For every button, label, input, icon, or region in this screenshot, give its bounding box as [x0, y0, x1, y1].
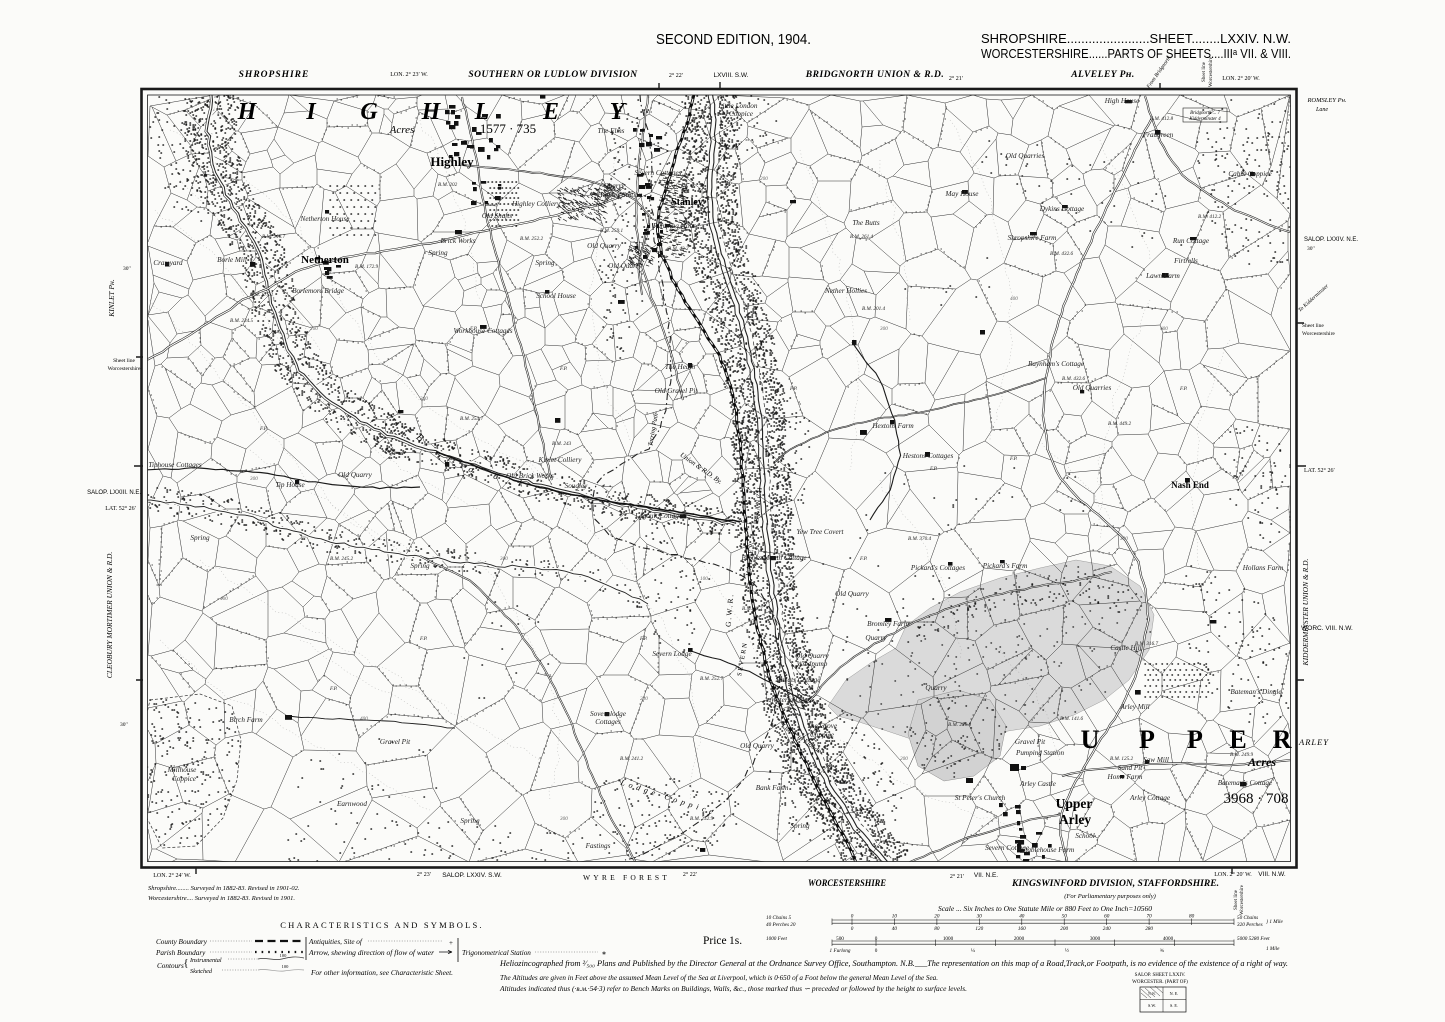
- svg-text:Arley Castle: Arley Castle: [1019, 780, 1057, 788]
- svg-text:May House: May House: [945, 190, 980, 198]
- svg-text:Sheet line: Sheet line: [1234, 889, 1239, 910]
- svg-text:WORCESTERSHIRE......PARTS OF: WORCESTERSHIRE......PARTS OF SHEETS....I…: [981, 47, 1291, 61]
- svg-text:B.M. 241.2: B.M. 241.2: [620, 755, 643, 762]
- svg-text:Price: Price: [703, 935, 727, 947]
- svg-text:Spring: Spring: [535, 259, 555, 267]
- svg-text:B.M. 270.8: B.M. 270.8: [948, 722, 971, 728]
- svg-text:School: School: [1075, 832, 1095, 840]
- svg-text:300: 300: [1120, 536, 1128, 542]
- svg-text:SALOP. LXXIV. S.W.: SALOP. LXXIV. S.W.: [442, 872, 502, 879]
- svg-text:120: 120: [975, 926, 983, 932]
- svg-text:B.M. 210.7: B.M. 210.7: [262, 234, 285, 240]
- svg-text:Stanley: Stanley: [671, 197, 703, 208]
- svg-text:S.W.: S.W.: [1148, 1003, 1156, 1008]
- svg-text:B.M. 253.7: B.M. 253.7: [460, 416, 483, 422]
- svg-text:B.M. 432.6: B.M. 432.6: [1050, 250, 1073, 257]
- svg-text:1000 Feet: 1000 Feet: [766, 936, 787, 942]
- svg-text:Acres: Acres: [389, 124, 415, 136]
- svg-text:B.M. 43.2: B.M. 43.2: [668, 245, 689, 252]
- svg-text:10: 10: [892, 914, 898, 920]
- svg-text:ALVELEY Pʜ.: ALVELEY Pʜ.: [1070, 70, 1135, 80]
- svg-text:SHROPSHIRE: SHROPSHIRE: [239, 70, 310, 80]
- svg-text:CHARACTERISTICS AND SYMBOLS.: CHARACTERISTICS AND SYMBOLS.: [280, 920, 484, 930]
- svg-text:Worcestershire.... Surveyed: Worcestershire.... Surveyed in 1882-83. …: [148, 895, 295, 902]
- svg-text:N.W.: N.W.: [1148, 992, 1156, 996]
- svg-text:240: 240: [1103, 925, 1111, 932]
- svg-text:Old Quarry: Old Quarry: [795, 652, 830, 660]
- svg-text:1 Mile: 1 Mile: [1266, 946, 1280, 952]
- svg-text:LAT. 52° 26′: LAT. 52° 26′: [105, 505, 136, 512]
- svg-text:3000: 3000: [1090, 936, 1101, 942]
- svg-text:B.M. 252.9: B.M. 252.9: [690, 816, 713, 822]
- svg-text:LAT. 52° 26′: LAT. 52° 26′: [1304, 467, 1335, 474]
- svg-text:The Heath: The Heath: [665, 363, 696, 371]
- svg-text:Highley Colliery: Highley Colliery: [511, 200, 561, 208]
- svg-text:300: 300: [560, 816, 568, 822]
- svg-text:Pumping Station: Pumping Station: [1015, 749, 1065, 757]
- svg-text:Old Brick Works: Old Brick Works: [506, 472, 554, 480]
- svg-text:Old Shafts: Old Shafts: [482, 212, 512, 220]
- svg-text:LON. 2° 20′ W.: LON. 2° 20′ W.: [1222, 75, 1260, 82]
- svg-text:Highley: Highley: [430, 154, 474, 169]
- svg-text:∗: ∗: [601, 951, 606, 957]
- svg-text:F.P.: F.P.: [639, 636, 648, 642]
- svg-text:Quarry: Quarry: [925, 684, 947, 692]
- svg-text:Altitudes indicated thus (·ʙ.ᴍ: Altitudes indicated thus (·ʙ.ᴍ.·54·3) re…: [499, 984, 967, 993]
- svg-text:B.M. 370.4: B.M. 370.4: [908, 535, 931, 542]
- svg-text:50: 50: [1062, 914, 1068, 920]
- svg-text:Borlemore Bridge: Borlemore Bridge: [292, 287, 345, 295]
- svg-text:Borle Mill: Borle Mill: [217, 256, 247, 264]
- svg-text:Tiphouse Cottages: Tiphouse Cottages: [148, 461, 202, 469]
- svg-text:Fraugreen: Fraugreen: [1142, 131, 1174, 139]
- svg-text:Sheet line: Sheet line: [1302, 323, 1324, 329]
- svg-text:VII. N.E.: VII. N.E.: [974, 872, 998, 879]
- svg-text:B.M. 316.7: B.M. 316.7: [1135, 641, 1158, 647]
- svg-text:Saw Mill: Saw Mill: [1143, 756, 1169, 764]
- svg-text:N. E.: N. E.: [1170, 991, 1179, 996]
- svg-text:½: ½: [1065, 947, 1069, 954]
- svg-text:200: 200: [900, 756, 908, 762]
- svg-text:Worcestershire: Worcestershire: [1209, 56, 1214, 87]
- svg-text:County Boundary: County Boundary: [156, 938, 208, 946]
- svg-text:Gravel Pit: Gravel Pit: [380, 738, 411, 746]
- svg-text:2° 21′: 2° 21′: [950, 873, 965, 880]
- svg-text:F.P.: F.P.: [1179, 386, 1188, 392]
- svg-text:2° 22′: 2° 22′: [683, 871, 698, 878]
- svg-text:LXVIII. S.W.: LXVIII. S.W.: [713, 72, 748, 79]
- svg-text:Severn Lodge: Severn Lodge: [652, 650, 692, 658]
- svg-text:Pumping House: Pumping House: [652, 222, 700, 230]
- svg-text:H: H: [421, 99, 442, 125]
- svg-text:¼: ¼: [971, 948, 975, 954]
- svg-text:F.P.: F.P.: [789, 386, 798, 392]
- svg-text:B.M. 259.1: B.M. 259.1: [600, 228, 623, 234]
- svg-text:Arley Mill: Arley Mill: [1119, 703, 1149, 711]
- svg-text:160: 160: [1018, 926, 1026, 932]
- svg-text:KINGSWINFORD DIVISION, STA: KINGSWINFORD DIVISION, STAFFORDSHIRE.: [1011, 879, 1219, 889]
- svg-text:Tip House: Tip House: [275, 481, 305, 489]
- svg-text:400: 400: [1160, 325, 1168, 332]
- svg-text:The Altitudes are given in Fee: The Altitudes are given in Feet above th…: [500, 973, 938, 982]
- svg-text:10 Chains 5: 10 Chains 5: [766, 915, 791, 921]
- svg-text:50 Chains: 50 Chains: [1237, 915, 1258, 921]
- svg-text:SOUTHERN OR LUDLOW DIVISION: SOUTHERN OR LUDLOW DIVISION: [468, 70, 638, 80]
- svg-text:Arley: Arley: [1059, 812, 1091, 827]
- svg-text:Worcestershire: Worcestershire: [1240, 884, 1245, 915]
- svg-text:B.M. 252.2: B.M. 252.2: [520, 236, 543, 242]
- svg-text:LON. 2° 20′ W.: LON. 2° 20′ W.: [1214, 871, 1252, 878]
- svg-text:Old Quarries: Old Quarries: [1006, 152, 1045, 160]
- svg-text:2° 23′: 2° 23′: [417, 871, 432, 878]
- svg-text:Workhouse Cottages: Workhouse Cottages: [453, 327, 512, 335]
- svg-text:E: E: [1229, 725, 1246, 754]
- svg-text:Bateman's Dingle: Bateman's Dingle: [1230, 688, 1282, 696]
- svg-text:200: 200: [760, 176, 768, 182]
- svg-text:Hextons Farm: Hextons Farm: [871, 422, 913, 430]
- svg-text:Quarry: Quarry: [603, 182, 625, 190]
- svg-text:WORCESTERSHIRE: WORCESTERSHIRE: [808, 879, 886, 889]
- svg-text:SECOND EDITION, 1904.: SECOND EDITION, 1904.: [656, 31, 811, 48]
- svg-text:100: 100: [700, 576, 708, 582]
- svg-text:School House: School House: [536, 292, 577, 300]
- svg-text:0: 0: [851, 914, 854, 920]
- svg-text:Windpump: Windpump: [797, 660, 828, 668]
- svg-text:Old Quarry: Old Quarry: [338, 471, 373, 479]
- svg-text:2° 21′: 2° 21′: [949, 75, 964, 82]
- svg-text:+: +: [449, 939, 453, 947]
- svg-text:WORCESTER. (PART OF): WORCESTER. (PART OF): [1132, 980, 1188, 985]
- svg-text:Fastings: Fastings: [585, 842, 611, 850]
- svg-text:Upper: Upper: [1056, 796, 1093, 811]
- svg-text:Y: Y: [610, 99, 627, 125]
- svg-text:3968 · 708: 3968 · 708: [1224, 791, 1289, 807]
- svg-text:1577 · 735: 1577 · 735: [480, 121, 536, 136]
- svg-text:Coppice: Coppice: [810, 731, 835, 739]
- svg-text:{: {: [183, 957, 188, 969]
- svg-text:Bank Farm: Bank Farm: [756, 784, 789, 792]
- svg-text:B.M. 245.2: B.M. 245.2: [330, 555, 353, 562]
- svg-text:U: U: [1081, 725, 1100, 754]
- svg-text:B.M. 412.8: B.M. 412.8: [1150, 115, 1173, 122]
- svg-text:F.P.: F.P.: [419, 636, 428, 642]
- svg-text:Gravel Pit: Gravel Pit: [1015, 738, 1046, 746]
- svg-text:Lagoult Cottages: Lagoult Cottages: [634, 512, 685, 520]
- svg-text:Spring: Spring: [410, 562, 430, 570]
- svg-text:Bromley Farm: Bromley Farm: [867, 620, 909, 628]
- svg-text:400: 400: [1010, 295, 1018, 302]
- svg-text:Netherton: Netherton: [301, 254, 349, 266]
- svg-text:30′′: 30′′: [123, 266, 131, 272]
- svg-text:SALOP. LXXIII. N.E.: SALOP. LXXIII. N.E.: [87, 490, 141, 496]
- svg-text:Sovernlodge: Sovernlodge: [590, 710, 627, 718]
- svg-text:40: 40: [892, 925, 898, 932]
- svg-text:Brick Works: Brick Works: [440, 237, 475, 245]
- svg-text:VIII. N.W.: VIII. N.W.: [1258, 871, 1286, 878]
- svg-text:Arrow, shewing direction of fl: Arrow, shewing direction of flow of wate…: [308, 949, 434, 957]
- svg-text:400: 400: [220, 595, 228, 602]
- svg-text:5000 5280 Feet: 5000 5280 Feet: [1237, 936, 1270, 942]
- svg-text:Severn Cottages: Severn Cottages: [635, 169, 682, 177]
- svg-text:For other information, see Cha: For other information, see Characteristi…: [310, 969, 453, 977]
- svg-text:Quarry: Quarry: [865, 634, 887, 642]
- svg-text:280: 280: [1145, 926, 1153, 932]
- svg-text:ROMSLEY Pʜ.: ROMSLEY Pʜ.: [1306, 97, 1346, 104]
- svg-text:Parish Boundary: Parish Boundary: [155, 949, 206, 957]
- svg-text:I: I: [305, 99, 317, 125]
- svg-text:Worcestershire: Worcestershire: [108, 366, 141, 372]
- svg-text:BRIDGNORTH UNION & R.D.: BRIDGNORTH UNION & R.D.: [805, 70, 944, 80]
- svg-text:4000: 4000: [1163, 936, 1174, 942]
- svg-text:20: 20: [934, 914, 940, 920]
- svg-text:Nether Hollies: Nether Hollies: [824, 287, 867, 295]
- svg-text:Soudley: Soudley: [565, 482, 589, 490]
- svg-text:Sheet line: Sheet line: [113, 358, 135, 364]
- svg-text:Little London: Little London: [718, 102, 758, 110]
- svg-text:B.M. 243: B.M. 243: [552, 440, 572, 447]
- svg-text:KIDDERMINSTER UNION & R.D.: KIDDERMINSTER UNION & R.D.: [1301, 558, 1310, 666]
- svg-text:Spring: Spring: [190, 534, 210, 542]
- svg-text:Spring: Spring: [460, 817, 480, 825]
- svg-text:Dykins Cottage: Dykins Cottage: [1039, 205, 1085, 213]
- svg-text:Sarjats Cottage: Sarjats Cottage: [776, 676, 822, 684]
- svg-text:Contours: Contours: [157, 962, 184, 970]
- svg-text:St Peter's Church: St Peter's Church: [955, 794, 1006, 802]
- svg-text:Cramyard: Cramyard: [153, 259, 183, 267]
- svg-text:B.M. 125.2: B.M. 125.2: [1110, 756, 1133, 762]
- svg-text:¾: ¾: [1160, 947, 1164, 954]
- svg-text:400: 400: [360, 715, 368, 722]
- svg-text:300: 300: [880, 326, 888, 332]
- svg-text:80: 80: [1189, 914, 1195, 920]
- svg-text:Hestons Cottages: Hestons Cottages: [902, 452, 954, 460]
- svg-text:0: 0: [851, 926, 854, 932]
- svg-text:Antiquities, Site of: Antiquities, Site of: [308, 938, 363, 946]
- svg-text:70: 70: [1147, 914, 1153, 920]
- svg-text:Millhouse: Millhouse: [167, 766, 198, 774]
- svg-text:80: 80: [934, 926, 940, 932]
- svg-text:Home Farm: Home Farm: [1107, 773, 1143, 781]
- svg-text:Coppice: Coppice: [729, 110, 754, 118]
- svg-text:LON. 2° 23′ W.: LON. 2° 23′ W.: [390, 71, 428, 78]
- svg-text:B.M. 432.6: B.M. 432.6: [1062, 375, 1085, 382]
- svg-text:Sheet line: Sheet line: [1202, 61, 1207, 82]
- svg-text:Bateman's Cottage: Bateman's Cottage: [1218, 779, 1273, 787]
- svg-text:Earnwood: Earnwood: [336, 800, 367, 808]
- svg-text:60: 60: [1104, 914, 1110, 920]
- svg-text:Yew Tree Covert: Yew Tree Covert: [797, 528, 845, 536]
- svg-text:40 Perches 20: 40 Perches 20: [766, 921, 796, 928]
- svg-text:Netherton House: Netherton House: [300, 215, 351, 223]
- svg-text:Pickard's Farm: Pickard's Farm: [982, 562, 1028, 570]
- svg-text:0: 0: [875, 948, 878, 954]
- svg-text:F.P.: F.P.: [559, 366, 568, 372]
- svg-text:WYRE FOREST: WYRE FOREST: [583, 873, 670, 882]
- svg-text:Old Quarry: Old Quarry: [608, 262, 643, 270]
- svg-text:Arley Cottage: Arley Cottage: [1129, 794, 1171, 802]
- svg-text:100: 100: [282, 964, 290, 969]
- svg-text:Birch Farm: Birch Farm: [229, 716, 262, 724]
- svg-text:P: P: [1187, 725, 1203, 754]
- svg-text:Coppice: Coppice: [172, 775, 197, 783]
- svg-text:Spring: Spring: [428, 249, 448, 257]
- svg-text:} 1 Mile: } 1 Mile: [1266, 919, 1283, 925]
- svg-text:1000: 1000: [943, 936, 954, 942]
- svg-text:ARLEY: ARLEY: [1298, 737, 1329, 747]
- svg-text:40: 40: [1019, 913, 1025, 920]
- svg-text:Old Quarries: Old Quarries: [1073, 384, 1112, 392]
- svg-text:B.M. 412.2: B.M. 412.2: [1198, 213, 1221, 220]
- svg-text:R: R: [1273, 725, 1292, 754]
- svg-text:Nash End: Nash End: [1171, 480, 1209, 490]
- svg-text:Firtrells: Firtrells: [1173, 257, 1198, 265]
- svg-text:Heliozincographed from ²⁄₅₀₀: Heliozincographed from ²⁄₅₀₀ Plans and P…: [499, 959, 1288, 968]
- svg-text:F.P.: F.P.: [859, 556, 868, 562]
- svg-text:200: 200: [640, 696, 648, 702]
- svg-text:Shropshire Farm: Shropshire Farm: [1008, 234, 1057, 242]
- svg-text:Kinlet Colliery: Kinlet Colliery: [538, 456, 583, 464]
- svg-text:P: P: [1139, 725, 1155, 754]
- svg-text:The Grove: The Grove: [807, 722, 838, 730]
- svg-text:F.P.: F.P.: [929, 466, 938, 472]
- svg-text:CLEOBURY MORTIMER UNION &: CLEOBURY MORTIMER UNION & R.D.: [105, 552, 114, 679]
- svg-text:Stablehouse Farm: Stablehouse Farm: [1022, 846, 1075, 854]
- svg-text:B.M. 141.6: B.M. 141.6: [1060, 715, 1083, 722]
- svg-text:Bridgnorth ... 7: Bridgnorth ... 7: [1190, 111, 1220, 116]
- svg-text:B.M. 252.7: B.M. 252.7: [700, 676, 723, 682]
- svg-text:Scale ... Six Inches to One St: Scale ... Six Inches to One Statute Mile…: [938, 904, 1152, 913]
- svg-text:SHROPSHIRE....................: SHROPSHIRE.......................SHEET..…: [981, 32, 1291, 46]
- svg-text:The Elms: The Elms: [598, 127, 625, 135]
- svg-text:30: 30: [977, 914, 983, 920]
- svg-text:1s.: 1s.: [729, 935, 742, 947]
- svg-text:SALOP. SHEET LXXIV.: SALOP. SHEET LXXIV.: [1135, 973, 1186, 978]
- svg-text:Old Quarry: Old Quarry: [835, 590, 870, 598]
- svg-text:B.M. 234.5: B.M. 234.5: [230, 317, 253, 324]
- svg-text:LON. 2° 24′ W.: LON. 2° 24′ W.: [153, 872, 191, 879]
- svg-text:Cabin Coppice: Cabin Coppice: [1228, 170, 1272, 178]
- svg-text:30′′: 30′′: [120, 722, 128, 728]
- svg-text:B.M. 449.2: B.M. 449.2: [1108, 420, 1131, 427]
- svg-text:Sketched: Sketched: [190, 968, 213, 975]
- svg-text:Waterfall: Waterfall: [771, 696, 798, 704]
- svg-text:300: 300: [420, 396, 428, 402]
- svg-text:B.M. 175.2: B.M. 175.2: [250, 292, 273, 298]
- svg-text:0: 0: [875, 936, 878, 942]
- svg-text:B.M. 92.7: B.M. 92.7: [742, 606, 763, 612]
- svg-text:F.P.: F.P.: [469, 326, 478, 332]
- svg-text:F.P.: F.P.: [259, 426, 268, 432]
- svg-text:B.M. 249.9: B.M. 249.9: [1230, 751, 1253, 758]
- svg-text:High House: High House: [1104, 97, 1140, 105]
- svg-text:Instrumental: Instrumental: [189, 957, 222, 964]
- svg-text:Lane: Lane: [1315, 107, 1328, 113]
- svg-text:S. E.: S. E.: [1170, 1003, 1178, 1008]
- svg-text:2000: 2000: [1014, 936, 1025, 942]
- svg-text:KINLET Pʜ.: KINLET Pʜ.: [107, 279, 116, 318]
- svg-text:Highley Station: Highley Station: [597, 191, 643, 199]
- svg-text:Lawn Farm: Lawn Farm: [1145, 272, 1180, 280]
- svg-text:30′′: 30′′: [1307, 246, 1315, 252]
- svg-text:Baynham's Cottage: Baynham's Cottage: [1028, 360, 1085, 368]
- svg-text:Run Cottage: Run Cottage: [1172, 237, 1210, 245]
- svg-text:G: G: [360, 99, 378, 125]
- svg-text:Worcestershire: Worcestershire: [1302, 331, 1335, 337]
- svg-text:Spring: Spring: [790, 822, 810, 830]
- svg-text:200: 200: [310, 326, 318, 332]
- svg-text:F.P.: F.P.: [329, 686, 338, 692]
- svg-text:300: 300: [500, 556, 508, 562]
- svg-text:Old Gravel Pit: Old Gravel Pit: [655, 387, 699, 395]
- svg-text:Old Quarry: Old Quarry: [587, 242, 622, 250]
- svg-text:Kidderminster 4: Kidderminster 4: [1188, 117, 1221, 122]
- svg-text:E: E: [542, 99, 559, 125]
- svg-text:Sand Pit: Sand Pit: [1118, 764, 1144, 772]
- svg-text:F.P.: F.P.: [1009, 456, 1018, 462]
- svg-text:H: H: [237, 99, 258, 125]
- svg-text:200: 200: [1060, 926, 1068, 932]
- svg-text:(For Parliamentary purposes on: (For Parliamentary purposes only): [1064, 893, 1156, 900]
- svg-text:SALOP. LXXIV. N.E.: SALOP. LXXIV. N.E.: [1304, 237, 1358, 243]
- svg-text:Old Quarry: Old Quarry: [740, 742, 775, 750]
- svg-text:WORC. VIII. N.W.: WORC. VIII. N.W.: [1301, 625, 1353, 632]
- svg-text:Hollans Farm: Hollans Farm: [1242, 564, 1284, 572]
- svg-text:Shropshire........ Surveyed: Shropshire........ Surveyed in 1882-83. …: [148, 885, 300, 892]
- svg-text:2° 22′: 2° 22′: [669, 72, 684, 79]
- svg-text:320 Perches: 320 Perches: [1237, 922, 1263, 928]
- svg-text:Cottages: Cottages: [595, 718, 621, 726]
- svg-text:Pickard's Cottages: Pickard's Cottages: [910, 564, 965, 572]
- svg-text:Trigonometrical Station: Trigonometrical Station: [462, 949, 531, 957]
- svg-text:1 Furlong: 1 Furlong: [830, 948, 851, 954]
- svg-text:The Butts: The Butts: [852, 219, 880, 227]
- svg-text:B.M. 202: B.M. 202: [438, 182, 458, 188]
- svg-text:300: 300: [250, 476, 258, 482]
- svg-text:B.M. 172.9: B.M. 172.9: [355, 264, 378, 270]
- svg-text:100: 100: [280, 953, 288, 958]
- svg-text:B.M. 261.4: B.M. 261.4: [850, 233, 873, 240]
- svg-text:500: 500: [836, 936, 844, 942]
- svg-text:B.M. 201.4: B.M. 201.4: [862, 305, 885, 312]
